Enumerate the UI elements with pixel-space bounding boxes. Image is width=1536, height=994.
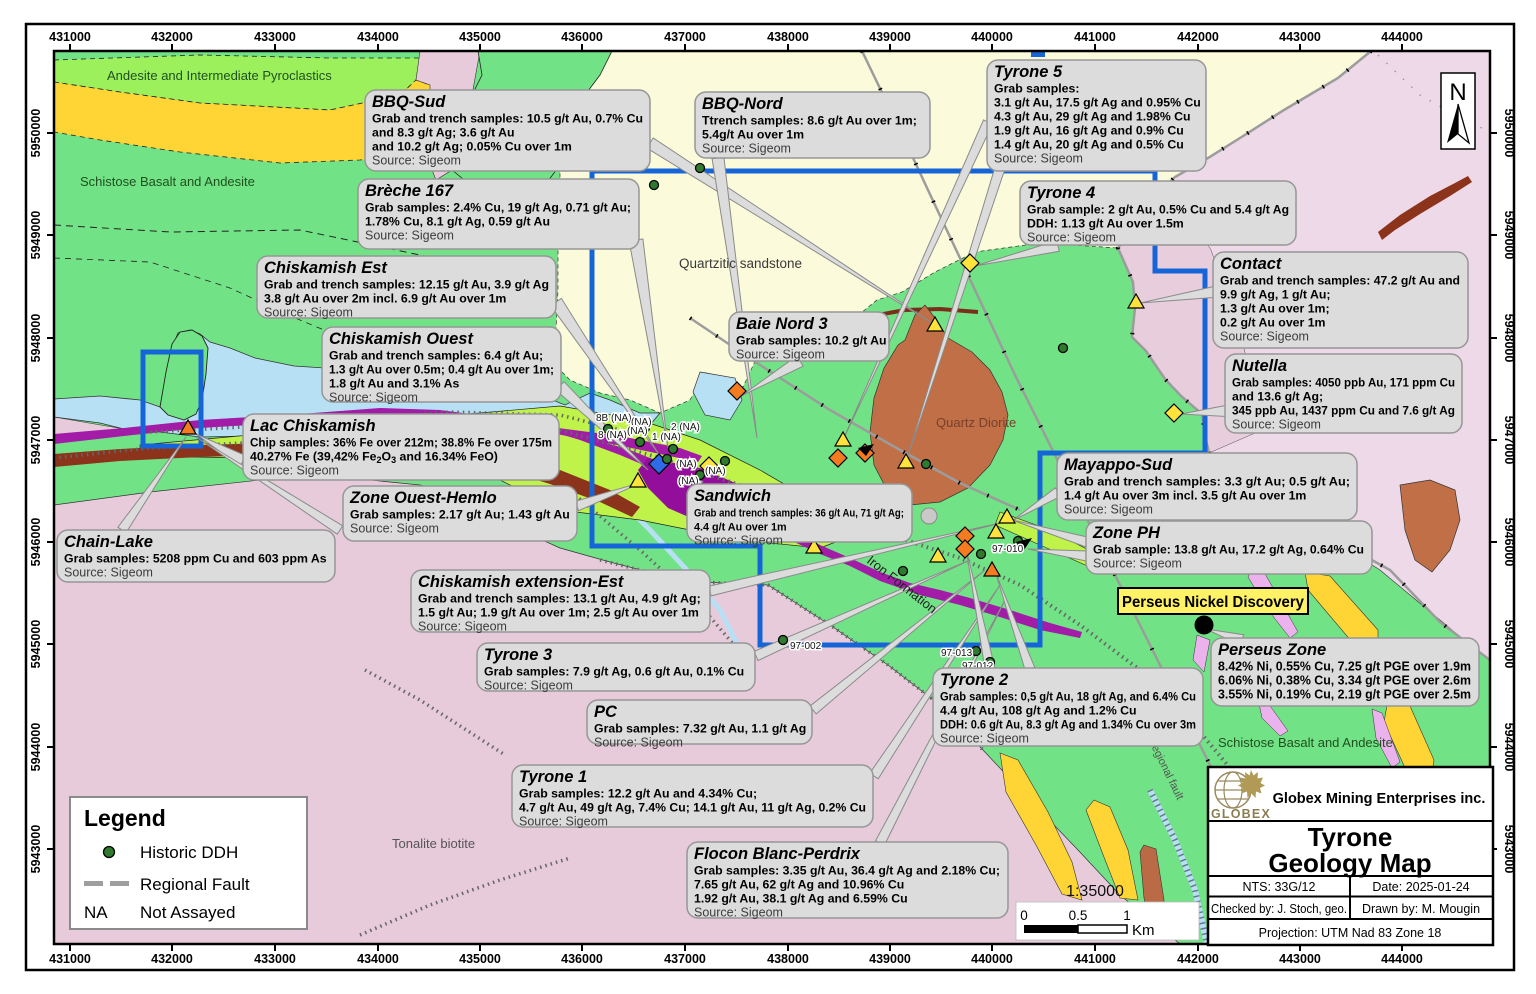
svg-text:Source: Sigeom: Source: Sigeom: [484, 679, 573, 693]
svg-text:442000: 442000: [1177, 30, 1219, 44]
svg-text:Grab and trench samples: 10.5: Grab and trench samples: 10.5 g/t Au, 0.…: [372, 112, 643, 126]
svg-text:Source: Sigeom: Source: Sigeom: [1093, 557, 1182, 571]
svg-text:0: 0: [1020, 908, 1028, 923]
svg-text:Source: Sigeom: Source: Sigeom: [1220, 330, 1309, 344]
svg-text:(NA): (NA): [676, 459, 697, 470]
svg-text:3.55% Ni, 0.19% Cu, 2.19 g/t: 3.55% Ni, 0.19% Cu, 2.19 g/t PGE over 2.…: [1218, 688, 1471, 702]
svg-text:Sandwich: Sandwich: [694, 487, 771, 505]
svg-text:Tyrone 4: Tyrone 4: [1027, 184, 1095, 202]
svg-text:5945000: 5945000: [29, 620, 43, 669]
svg-text:Grab sample: 2 g/t Au, 0.5% Cu: Grab sample: 2 g/t Au, 0.5% Cu and 5.4 g…: [1027, 203, 1289, 217]
svg-text:1.4 g/t Au over 3m incl. 3.5 g: 1.4 g/t Au over 3m incl. 3.5 g/t Au over…: [1064, 489, 1306, 503]
svg-text:Drawn by: M. Mougin: Drawn by: M. Mougin: [1362, 902, 1480, 916]
svg-text:431000: 431000: [49, 30, 91, 44]
svg-text:(NA): (NA): [627, 426, 648, 437]
svg-text:Tyrone 1: Tyrone 1: [519, 768, 587, 786]
svg-text:(NA): (NA): [705, 466, 726, 477]
svg-text:Grab sample: 13.8 g/t Au, 17.2: Grab sample: 13.8 g/t Au, 17.2 g/t Ag, 0…: [1093, 543, 1364, 557]
svg-text:435000: 435000: [459, 30, 501, 44]
svg-text:Nutella: Nutella: [1232, 357, 1287, 375]
svg-text:1.5 g/t Au; 1.9 g/t Au over 1m: 1.5 g/t Au; 1.9 g/t Au over 1m; 2.5 g/t …: [418, 606, 699, 620]
svg-text:431000: 431000: [49, 952, 91, 966]
svg-text:Grab samples: 0,5 g/t Au, 18 g: Grab samples: 0,5 g/t Au, 18 g/t Ag, and…: [940, 690, 1196, 704]
svg-text:1.92 g/t Au, 38.1 g/t Ag and 6: 1.92 g/t Au, 38.1 g/t Ag and 6.59% Cu: [694, 892, 908, 906]
svg-text:Grab and trench samples: 6.4 g: Grab and trench samples: 6.4 g/t Au;: [329, 349, 543, 363]
svg-text:7.65 g/t Au, 62 g/t Ag and 10.: 7.65 g/t Au, 62 g/t Ag and 10.96% Cu: [694, 878, 904, 892]
svg-text:97-002: 97-002: [790, 641, 822, 652]
svg-text:444000: 444000: [1381, 952, 1423, 966]
svg-text:5950000: 5950000: [29, 109, 43, 158]
svg-text:434000: 434000: [357, 30, 399, 44]
svg-text:438000: 438000: [767, 30, 809, 44]
svg-text:Source: Sigeom: Source: Sigeom: [329, 391, 418, 405]
svg-text:5.4g/t Au over 1m: 5.4g/t Au over 1m: [702, 128, 804, 142]
svg-text:Source: Sigeom: Source: Sigeom: [594, 736, 683, 750]
svg-text:1.4 g/t Au, 20 g/t Ag and 0.5%: 1.4 g/t Au, 20 g/t Ag and 0.5% Cu: [994, 138, 1184, 152]
svg-text:Source: Sigeom: Source: Sigeom: [694, 906, 783, 920]
svg-text:Chip samples: 36% Fe over 212m: Chip samples: 36% Fe over 212m; 38.8% Fe…: [250, 436, 552, 450]
svg-text:5947000: 5947000: [1502, 416, 1516, 465]
svg-text:Grab and trench samples: 47.2: Grab and trench samples: 47.2 g/t Au and: [1220, 274, 1460, 288]
svg-text:Grab samples: 3.35 g/t Au, 36.: Grab samples: 3.35 g/t Au, 36.4 g/t Ag a…: [694, 864, 1000, 878]
svg-text:Checked by: J. Stoch, geo.: Checked by: J. Stoch, geo.: [1211, 902, 1347, 916]
svg-text:Source: Sigeom: Source: Sigeom: [418, 620, 507, 634]
svg-text:4.3 g/t Au, 29 g/t Ag and 1.98: 4.3 g/t Au, 29 g/t Ag and 1.98% Cu: [994, 110, 1191, 124]
svg-text:444000: 444000: [1381, 30, 1423, 44]
svg-text:0.5: 0.5: [1069, 908, 1088, 923]
svg-text:440000: 440000: [971, 952, 1013, 966]
svg-text:Source: Sigeom: Source: Sigeom: [64, 566, 153, 580]
svg-text:437000: 437000: [664, 952, 706, 966]
svg-text:345 ppb Au, 1437 ppm Cu and 7.: 345 ppb Au, 1437 ppm Cu and 7.6 g/t Ag: [1232, 404, 1455, 418]
svg-text:Baie Nord 3: Baie Nord 3: [736, 315, 828, 333]
svg-text:Lac Chiskamish: Lac Chiskamish: [250, 417, 376, 435]
svg-text:441000: 441000: [1074, 952, 1116, 966]
svg-text:Brèche 167: Brèche 167: [365, 182, 454, 200]
svg-text:and 13.6 g/t Ag;: and 13.6 g/t Ag;: [1232, 390, 1323, 404]
svg-text:Andesite and Intermediate Pyro: Andesite and Intermediate Pyroclastics: [107, 68, 332, 83]
svg-text:Date: 2025-01-24: Date: 2025-01-24: [1372, 880, 1469, 894]
svg-text:Not Assayed: Not Assayed: [140, 903, 235, 922]
svg-text:Chiskamish Ouest: Chiskamish Ouest: [329, 330, 474, 348]
svg-text:DDH: 1.13 g/t Au over 1.5m: DDH: 1.13 g/t Au over 1.5m: [1027, 217, 1184, 231]
svg-text:Source: Sigeom: Source: Sigeom: [940, 732, 1029, 746]
svg-text:5950000: 5950000: [1502, 109, 1516, 158]
svg-text:Grab samples: 7.9 g/t Ag, 0.6: Grab samples: 7.9 g/t Ag, 0.6 g/t Au, 0.…: [484, 665, 744, 679]
svg-text:Source: Sigeom: Source: Sigeom: [372, 154, 461, 168]
svg-text:437000: 437000: [664, 30, 706, 44]
svg-text:Source: Sigeom: Source: Sigeom: [350, 522, 439, 536]
svg-text:Source: Sigeom: Source: Sigeom: [694, 534, 783, 548]
svg-text:Perseus Nickel Discovery: Perseus Nickel Discovery: [1122, 594, 1304, 611]
svg-text:Source: Sigeom: Source: Sigeom: [736, 348, 825, 362]
svg-text:Quartzitic sandstone: Quartzitic sandstone: [679, 256, 802, 271]
svg-text:1.8 g/t Au and 3.1% As: 1.8 g/t Au and 3.1% As: [329, 377, 459, 391]
svg-text:433000: 433000: [254, 952, 296, 966]
svg-text:5946000: 5946000: [29, 518, 43, 567]
svg-text:5946000: 5946000: [1502, 518, 1516, 567]
svg-text:439000: 439000: [869, 30, 911, 44]
svg-text:Schistose Basalt and Andesite: Schistose Basalt and Andesite: [80, 174, 255, 189]
svg-text:Grab samples:: Grab samples:: [994, 82, 1079, 96]
svg-text:Historic DDH: Historic DDH: [140, 843, 238, 862]
svg-text:NA: NA: [84, 903, 108, 922]
svg-text:5945000: 5945000: [1502, 620, 1516, 669]
svg-text:BBQ-Sud: BBQ-Sud: [372, 93, 446, 111]
svg-text:Grab samples: 10.2 g/t Au: Grab samples: 10.2 g/t Au: [736, 334, 887, 348]
svg-text:Flocon Blanc-Perdrix: Flocon Blanc-Perdrix: [694, 845, 861, 863]
svg-text:Source: Sigeom: Source: Sigeom: [702, 142, 791, 156]
svg-text:0.2 g/t Au over 1m: 0.2 g/t Au over 1m: [1220, 316, 1326, 330]
svg-text:97-010: 97-010: [992, 544, 1024, 555]
svg-text:Zone PH: Zone PH: [1092, 524, 1161, 542]
svg-text:Source: Sigeom: Source: Sigeom: [1232, 418, 1321, 432]
svg-text:8.42% Ni, 0.55% Cu, 7.25 g/t P: 8.42% Ni, 0.55% Cu, 7.25 g/t PGE over 1.…: [1218, 660, 1471, 674]
svg-text:Grab samples: 12.2 g/t Au and: Grab samples: 12.2 g/t Au and 4.34% Cu;: [519, 787, 757, 801]
svg-text:8 (NA): 8 (NA): [598, 430, 627, 441]
svg-text:1.78% Cu, 8.1 g/t Ag, 0.59 g/t: 1.78% Cu, 8.1 g/t Ag, 0.59 g/t Au: [365, 215, 550, 229]
svg-text:432000: 432000: [151, 30, 193, 44]
svg-text:Tyrone 3: Tyrone 3: [484, 646, 552, 664]
svg-text:and 10.2 g/t Ag; 0.05% Cu over: and 10.2 g/t Ag; 0.05% Cu over 1m: [372, 140, 572, 154]
svg-text:5943000: 5943000: [29, 825, 43, 874]
svg-text:436000: 436000: [561, 952, 603, 966]
svg-text:Km: Km: [1132, 922, 1155, 939]
svg-text:Grab samples: 7.32 g/t Au, 1.1: Grab samples: 7.32 g/t Au, 1.1 g/t Ag: [594, 722, 806, 736]
svg-text:Source: Sigeom: Source: Sigeom: [1064, 503, 1153, 517]
svg-text:Source: Sigeom: Source: Sigeom: [250, 464, 339, 478]
svg-text:and 8.3 g/t Ag; 3.6 g/t Au: and 8.3 g/t Ag; 3.6 g/t Au: [372, 126, 515, 140]
svg-text:Grab and trench samples: 36 g/: Grab and trench samples: 36 g/t Au, 71 g…: [694, 508, 904, 520]
svg-text:442000: 442000: [1177, 952, 1219, 966]
svg-text:443000: 443000: [1279, 952, 1321, 966]
svg-text:3.1 g/t Au, 17.5 g/t Ag and 0.: 3.1 g/t Au, 17.5 g/t Ag and 0.95% Cu: [994, 96, 1201, 110]
svg-text:Tonalite biotite: Tonalite biotite: [392, 836, 475, 851]
svg-text:Chiskamish extension-Est: Chiskamish extension-Est: [418, 573, 625, 591]
svg-text:Schistose Basalt and Andesite: Schistose Basalt and Andesite: [1218, 735, 1393, 750]
svg-text:Regional Fault: Regional Fault: [140, 875, 250, 894]
svg-text:Source: Sigeom: Source: Sigeom: [365, 229, 454, 243]
svg-text:1.3 g/t Au over 0.5m; 0.4 g/t: 1.3 g/t Au over 0.5m; 0.4 g/t Au over 1m…: [329, 363, 554, 377]
svg-text:5944000: 5944000: [1502, 723, 1516, 772]
svg-text:6.06% Ni, 0.38% Cu, 3.34 g/t P: 6.06% Ni, 0.38% Cu, 3.34 g/t PGE over 2.…: [1218, 674, 1471, 688]
svg-text:435000: 435000: [459, 952, 501, 966]
svg-text:Chain-Lake: Chain-Lake: [64, 533, 153, 551]
svg-text:436000: 436000: [561, 30, 603, 44]
svg-text:4.7 g/t Au, 49 g/t Ag, 7.4% Cu: 4.7 g/t Au, 49 g/t Ag, 7.4% Cu; 14.1 g/t…: [519, 801, 866, 815]
svg-text:5948000: 5948000: [1502, 314, 1516, 363]
svg-text:Grab samples: 4050 ppb Au, 171: Grab samples: 4050 ppb Au, 171 ppm Cu: [1232, 376, 1455, 390]
svg-text:5949000: 5949000: [1502, 211, 1516, 260]
svg-text:Source: Sigeom: Source: Sigeom: [1027, 231, 1116, 245]
svg-text:GLOBEX: GLOBEX: [1211, 807, 1271, 821]
svg-text:Perseus Zone: Perseus Zone: [1218, 641, 1326, 659]
svg-text:Chiskamish Est: Chiskamish Est: [264, 259, 388, 277]
svg-text:1:35000: 1:35000: [1066, 883, 1124, 900]
svg-text:432000: 432000: [151, 952, 193, 966]
svg-text:1 (NA): 1 (NA): [652, 432, 681, 443]
svg-text:Grab and trench samples: 3.3 g: Grab and trench samples: 3.3 g/t Au; 0.5…: [1064, 475, 1350, 489]
svg-text:Tyrone 5: Tyrone 5: [994, 63, 1063, 81]
svg-text:9.9 g/t Ag, 1 g/t Au;: 9.9 g/t Ag, 1 g/t Au;: [1220, 288, 1330, 302]
svg-text:5949000: 5949000: [29, 211, 43, 260]
svg-text:433000: 433000: [254, 30, 296, 44]
svg-text:Grab samples: 2.4% Cu, 19 g/t: Grab samples: 2.4% Cu, 19 g/t Ag, 0.71 g…: [365, 201, 631, 215]
svg-text:Source: Sigeom: Source: Sigeom: [994, 152, 1083, 166]
svg-text:Legend: Legend: [84, 805, 166, 831]
svg-text:DDH: 0.6 g/t Au, 8.3 g/t Ag an: DDH: 0.6 g/t Au, 8.3 g/t Ag and 1.34% Cu…: [940, 718, 1196, 732]
svg-text:BBQ-Nord: BBQ-Nord: [702, 95, 784, 113]
svg-text:Geology Map: Geology Map: [1268, 848, 1431, 878]
svg-text:Mayappo-Sud: Mayappo-Sud: [1064, 456, 1173, 474]
svg-text:Source: Sigeom: Source: Sigeom: [264, 306, 353, 320]
svg-text:Source: Sigeom: Source: Sigeom: [519, 815, 608, 829]
svg-text:Globex Mining Enterprises inc.: Globex Mining Enterprises inc.: [1273, 791, 1486, 807]
svg-text:1.3 g/t Au over 1m;: 1.3 g/t Au over 1m;: [1220, 302, 1330, 316]
svg-text:97-013: 97-013: [941, 648, 973, 659]
svg-text:Quartz Diorite: Quartz Diorite: [936, 415, 1016, 430]
svg-text:4.4 g/t Au over 1m: 4.4 g/t Au over 1m: [694, 522, 787, 534]
svg-text:439000: 439000: [869, 952, 911, 966]
svg-text:434000: 434000: [357, 952, 399, 966]
svg-text:1.9 g/t Au, 16 g/t Ag and 0.9%: 1.9 g/t Au, 16 g/t Ag and 0.9% Cu: [994, 124, 1184, 138]
svg-text:Contact: Contact: [1220, 255, 1283, 273]
svg-text:Grab and trench samples: 12.15: Grab and trench samples: 12.15 g/t Au, 3…: [264, 278, 549, 292]
svg-text:3.8 g/t Au over 2m incl. 6.9 g: 3.8 g/t Au over 2m incl. 6.9 g/t Au over…: [264, 292, 506, 306]
svg-text:4.4 g/t Au, 108 g/t Ag and 1.2: 4.4 g/t Au, 108 g/t Ag and 1.2% Cu: [940, 704, 1137, 718]
svg-text:8B (NA): 8B (NA): [596, 413, 632, 424]
svg-text:PC: PC: [594, 703, 618, 721]
svg-text:Grab samples: 5208 ppm Cu and: Grab samples: 5208 ppm Cu and 603 ppm As: [64, 552, 327, 566]
svg-text:5944000: 5944000: [29, 723, 43, 772]
svg-text:1: 1: [1123, 908, 1131, 923]
svg-text:5948000: 5948000: [29, 314, 43, 363]
svg-text:443000: 443000: [1279, 30, 1321, 44]
svg-text:441000: 441000: [1074, 30, 1116, 44]
svg-text:Zone Ouest-Hemlo: Zone Ouest-Hemlo: [349, 489, 497, 507]
svg-text:Grab and trench samples: 13.1: Grab and trench samples: 13.1 g/t Au, 4.…: [418, 592, 701, 606]
svg-text:Projection: UTM Nad 83 Zone 18: Projection: UTM Nad 83 Zone 18: [1259, 926, 1442, 940]
svg-text:Ttrench samples: 8.6 g/t Au ov: Ttrench samples: 8.6 g/t Au over 1m;: [702, 114, 917, 128]
svg-text:438000: 438000: [767, 952, 809, 966]
svg-text:Tyrone 2: Tyrone 2: [940, 671, 1008, 689]
svg-text:Grab samples: 2.17 g/t Au; 1.4: Grab samples: 2.17 g/t Au; 1.43 g/t Au: [350, 508, 570, 522]
svg-text:NTS: 33G/12: NTS: 33G/12: [1243, 880, 1316, 894]
svg-text:N: N: [1449, 79, 1466, 106]
svg-text:440000: 440000: [971, 30, 1013, 44]
svg-text:5943000: 5943000: [1502, 825, 1516, 874]
svg-text:5947000: 5947000: [29, 416, 43, 465]
